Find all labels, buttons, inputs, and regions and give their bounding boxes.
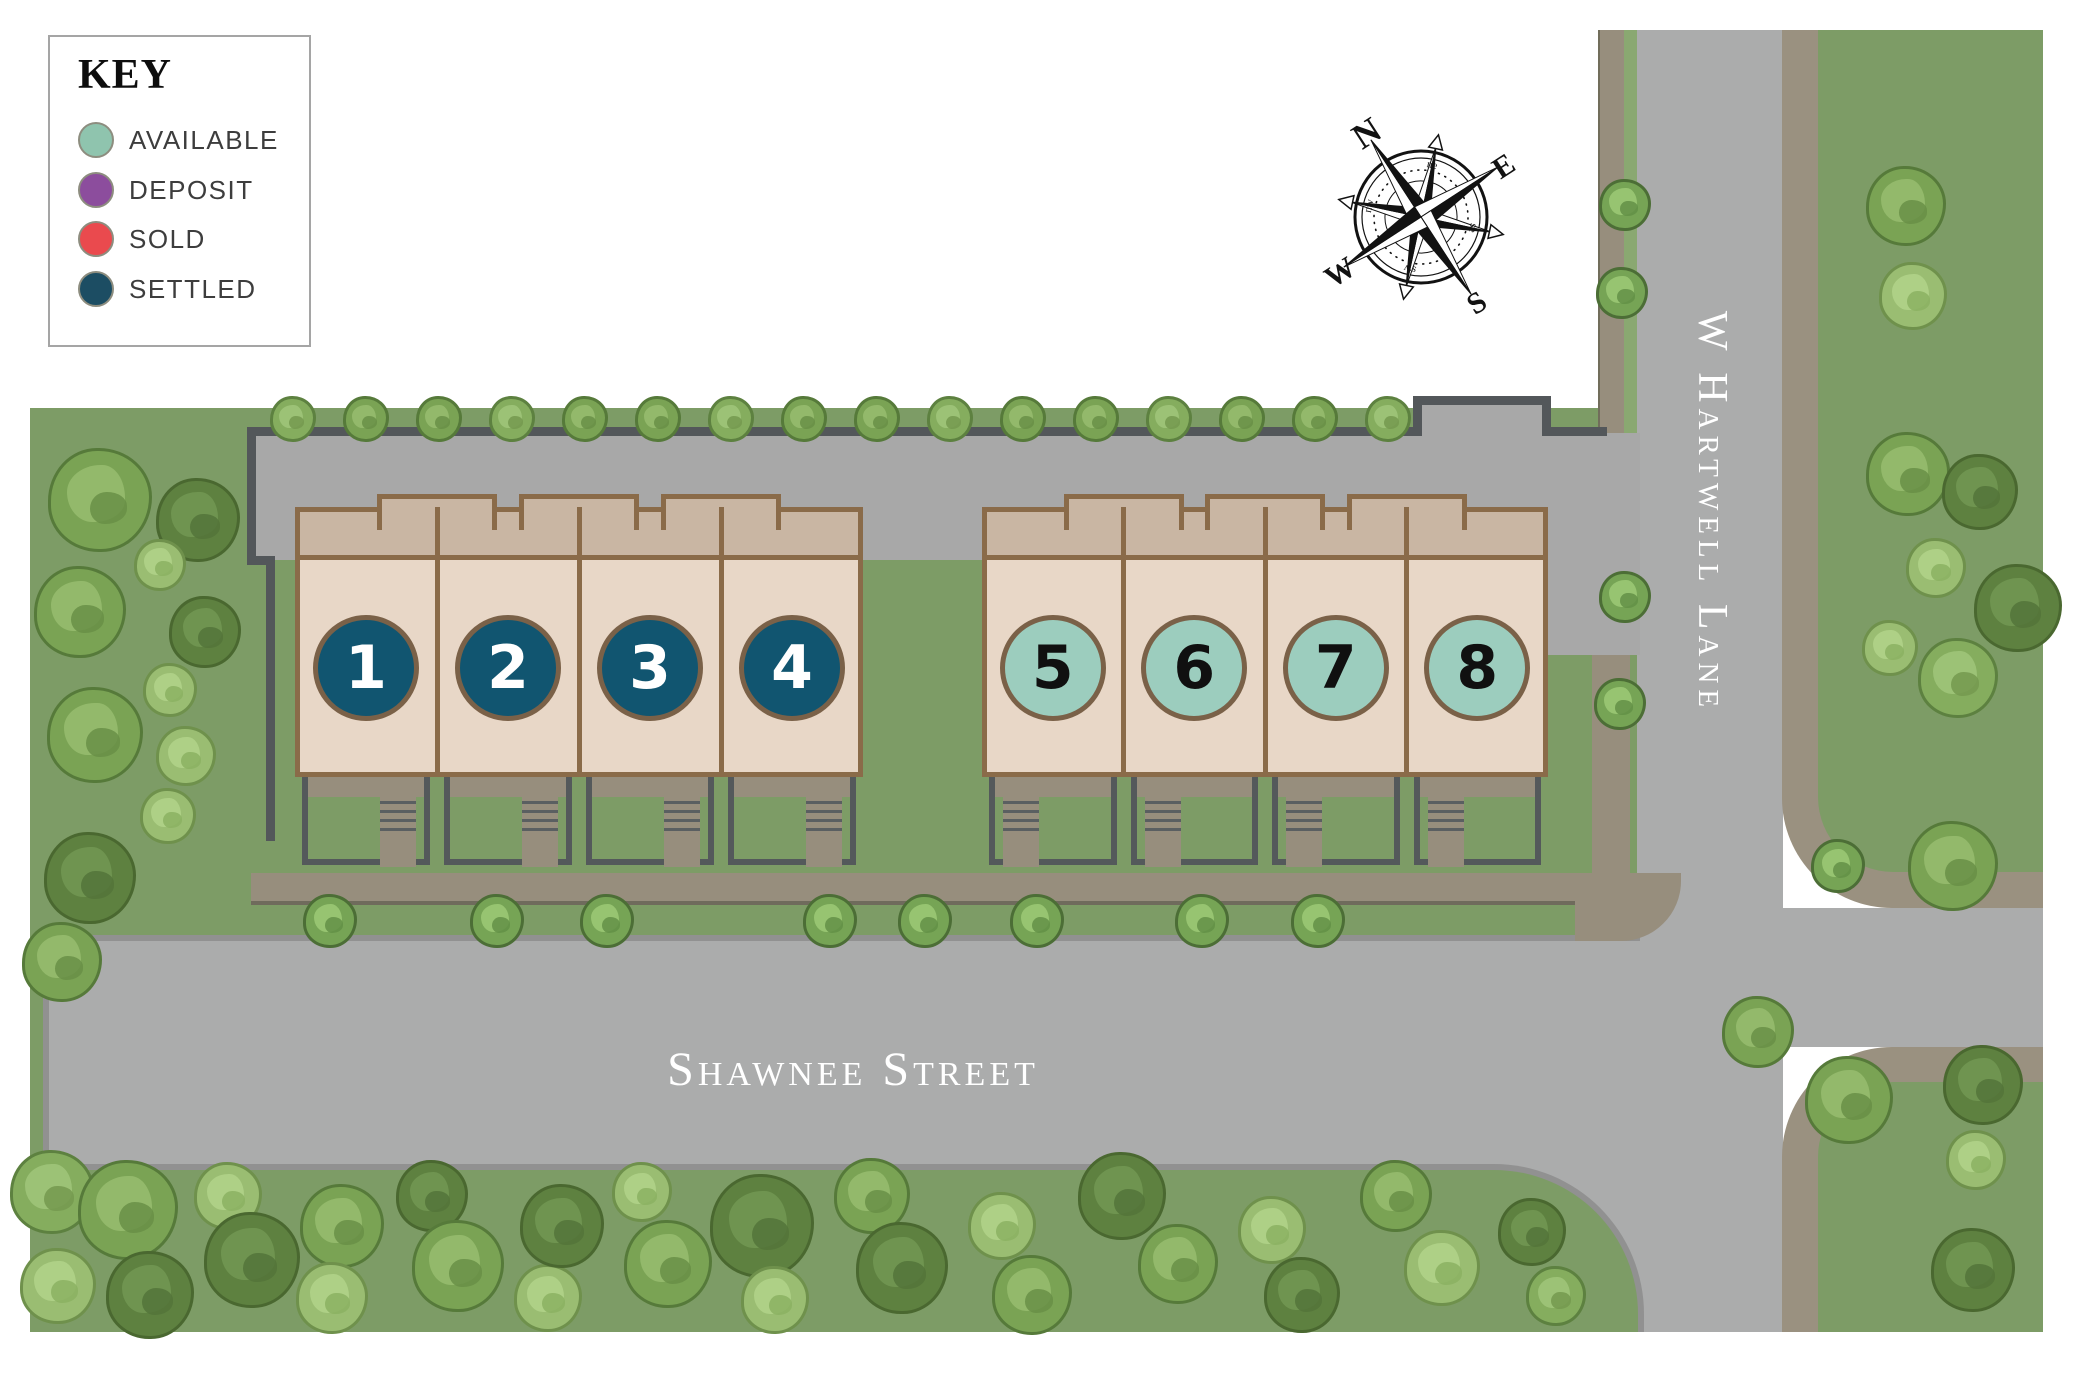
unit-marker-6[interactable]: 6: [1141, 615, 1247, 721]
tree-icon: [1946, 1130, 2006, 1190]
tree-icon: [781, 396, 827, 442]
shrub-icon: [1010, 894, 1064, 948]
unit-marker-4[interactable]: 4: [739, 615, 845, 721]
shrub-icon: [1594, 678, 1646, 730]
yard-stairs-icon: [380, 801, 416, 833]
unit-marker-5[interactable]: 5: [1000, 615, 1106, 721]
tree-icon: [489, 396, 535, 442]
tree-icon: [22, 922, 102, 1002]
tree-icon: [1918, 638, 1998, 718]
tree-icon: [612, 1162, 672, 1222]
site-plan-canvas: 12345678 Shawnee Street W Hartwell Lane …: [0, 0, 2095, 1381]
tree-icon: [20, 1248, 96, 1324]
yard-stairs-icon: [1286, 801, 1322, 833]
tree-icon: [562, 396, 608, 442]
yard-patio: [592, 777, 708, 797]
tree-icon: [1862, 620, 1918, 676]
tree-icon: [1908, 821, 1998, 911]
tree-icon: [1073, 396, 1119, 442]
tree-icon: [1264, 1257, 1340, 1333]
tree-icon: [1943, 1045, 2023, 1125]
tree-icon: [296, 1262, 368, 1334]
tree-icon: [1974, 564, 2062, 652]
party-wall: [1263, 507, 1268, 777]
tree-icon: [169, 596, 241, 668]
tree-icon: [1238, 1196, 1306, 1264]
svg-text:N: N: [1345, 109, 1389, 157]
tree-icon: [156, 726, 216, 786]
tree-icon: [1292, 396, 1338, 442]
unit-yard: [1414, 777, 1542, 865]
tree-icon: [140, 788, 196, 844]
tree-icon: [1931, 1228, 2015, 1312]
yard-stairs-icon: [1428, 801, 1464, 833]
legend-item-label: DEPOSIT: [129, 175, 254, 206]
legend-item-deposit: DEPOSIT: [78, 170, 254, 210]
party-wall: [1121, 507, 1126, 777]
legend-item-available: AVAILABLE: [78, 120, 279, 160]
building-group: 1234: [295, 507, 863, 777]
yard-patio: [995, 777, 1111, 797]
shrub-icon: [303, 894, 357, 948]
tree-icon: [1365, 396, 1411, 442]
shrub-icon: [1599, 571, 1651, 623]
tree-icon: [44, 832, 136, 924]
yard-patio: [734, 777, 850, 797]
tree-icon: [741, 1266, 809, 1334]
shrub-icon: [1811, 839, 1865, 893]
unit-yard: [302, 777, 430, 865]
tree-icon: [1722, 996, 1794, 1068]
unit-marker-2[interactable]: 2: [455, 615, 561, 721]
unit-yard: [1272, 777, 1400, 865]
svg-text:sw: sw: [1403, 262, 1418, 276]
compass-rose-icon: N E S W ne se sw nw: [1297, 93, 1545, 341]
yard-stairs-icon: [806, 801, 842, 833]
yard-patio: [1278, 777, 1394, 797]
legend-item-settled: SETTLED: [78, 269, 257, 309]
legend-item-label: AVAILABLE: [129, 125, 279, 156]
available-status-icon: [78, 122, 114, 158]
unit-marker-3[interactable]: 3: [597, 615, 703, 721]
tree-icon: [1906, 538, 1966, 598]
tree-icon: [204, 1212, 300, 1308]
tree-icon: [416, 396, 462, 442]
tree-icon: [1942, 454, 2018, 530]
shrub-icon: [1291, 894, 1345, 948]
tree-icon: [968, 1192, 1036, 1260]
shrub-icon: [1175, 894, 1229, 948]
unit-yard: [586, 777, 714, 865]
tree-icon: [1866, 166, 1946, 246]
tree-icon: [1000, 396, 1046, 442]
yard-patio: [1420, 777, 1536, 797]
shrub-icon: [1599, 179, 1651, 231]
tree-icon: [1219, 396, 1265, 442]
yard-patio: [450, 777, 566, 797]
unit-yard: [1131, 777, 1259, 865]
unit-yard: [989, 777, 1117, 865]
tree-icon: [854, 396, 900, 442]
yard-stairs-icon: [1003, 801, 1039, 833]
boundary-top-east: [1551, 427, 1607, 436]
unit-marker-1[interactable]: 1: [313, 615, 419, 721]
shrub-icon: [470, 894, 524, 948]
svg-text:nw: nw: [1362, 198, 1377, 214]
shrub-icon: [803, 894, 857, 948]
tree-icon: [1360, 1160, 1432, 1232]
yard-patio: [308, 777, 424, 797]
tree-icon: [635, 396, 681, 442]
unit-yard: [444, 777, 572, 865]
tree-icon: [48, 448, 152, 552]
settled-status-icon: [78, 271, 114, 307]
unit-marker-7[interactable]: 7: [1283, 615, 1389, 721]
yard-stairs-icon: [664, 801, 700, 833]
shrub-icon: [1596, 267, 1648, 319]
driveway-notch: [1413, 396, 1551, 436]
svg-text:se: se: [1466, 222, 1480, 234]
tree-icon: [1805, 1056, 1893, 1144]
tree-icon: [856, 1222, 948, 1314]
boundary-left-lower: [266, 556, 275, 841]
tree-icon: [992, 1255, 1072, 1335]
tree-icon: [1138, 1224, 1218, 1304]
tree-icon: [34, 566, 126, 658]
shawnee-street-label: Shawnee Street: [553, 1042, 1153, 1097]
tree-icon: [1498, 1198, 1566, 1266]
tree-icon: [624, 1220, 712, 1308]
tree-icon: [1078, 1152, 1166, 1240]
party-wall: [577, 507, 582, 777]
tree-icon: [708, 396, 754, 442]
tree-icon: [106, 1251, 194, 1339]
tree-icon: [514, 1264, 582, 1332]
tree-icon: [710, 1174, 814, 1278]
legend-item-sold: SOLD: [78, 219, 206, 259]
tree-icon: [343, 396, 389, 442]
sidewalk-hartwell-left-top: [1598, 30, 1624, 470]
tree-icon: [1146, 396, 1192, 442]
grass-sliver-road-left: [1622, 30, 1637, 470]
tree-icon: [300, 1184, 384, 1268]
svg-text:E: E: [1486, 147, 1521, 186]
hartwell-lane-label: W Hartwell Lane: [1688, 311, 1736, 713]
east-road-stub: [1782, 908, 2043, 1047]
yard-patio: [1137, 777, 1253, 797]
unit-yard: [728, 777, 856, 865]
tree-icon: [143, 663, 197, 717]
tree-icon: [47, 687, 143, 783]
building-group: 5678: [982, 507, 1548, 777]
tree-icon: [1404, 1230, 1480, 1306]
legend-item-label: SETTLED: [129, 274, 257, 305]
party-wall: [435, 507, 440, 777]
tree-icon: [1526, 1266, 1586, 1326]
tree-icon: [78, 1160, 178, 1260]
svg-text:S: S: [1461, 285, 1493, 322]
tree-icon: [927, 396, 973, 442]
unit-marker-8[interactable]: 8: [1424, 615, 1530, 721]
legend-item-label: SOLD: [129, 224, 206, 255]
tree-icon: [270, 396, 316, 442]
legend-title: KEY: [78, 51, 172, 99]
deposit-status-icon: [78, 172, 114, 208]
tree-icon: [1866, 432, 1950, 516]
shrub-icon: [898, 894, 952, 948]
tree-icon: [134, 539, 186, 591]
boundary-left: [247, 427, 256, 563]
legend: KEY AVAILABLE DEPOSIT SOLD SETTLED: [48, 35, 311, 347]
tree-icon: [412, 1220, 504, 1312]
shrub-icon: [580, 894, 634, 948]
tree-icon: [520, 1184, 604, 1268]
tree-icon: [1879, 262, 1947, 330]
yard-stairs-icon: [522, 801, 558, 833]
party-wall: [1404, 507, 1409, 777]
svg-text:ne: ne: [1426, 158, 1439, 172]
sold-status-icon: [78, 221, 114, 257]
party-wall: [719, 507, 724, 777]
yard-stairs-icon: [1145, 801, 1181, 833]
